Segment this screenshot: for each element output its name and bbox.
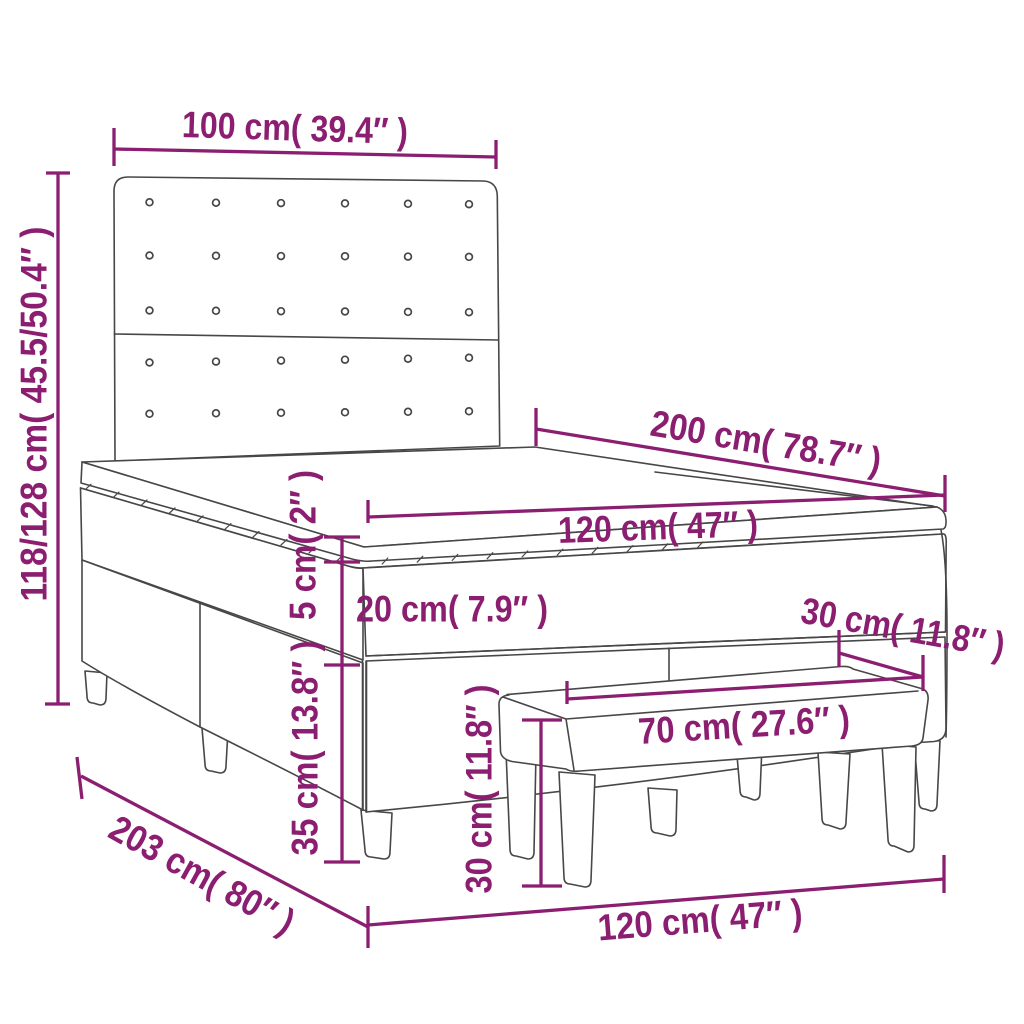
svg-text:20 cm( 7.9″ ): 20 cm( 7.9″ ) (356, 589, 548, 630)
svg-text:30 cm( 11.8″ ): 30 cm( 11.8″ ) (459, 685, 500, 894)
svg-text:100 cm( 39.4″ ): 100 cm( 39.4″ ) (181, 104, 408, 152)
svg-text:118/128 cm( 45.5/50.4″ ): 118/128 cm( 45.5/50.4″ ) (14, 227, 55, 602)
svg-text:120 cm( 47″ ): 120 cm( 47″ ) (557, 503, 758, 551)
svg-text:5 cm( 2″ ): 5 cm( 2″ ) (283, 470, 324, 620)
svg-text:35 cm( 13.8″ ): 35 cm( 13.8″ ) (285, 641, 326, 856)
